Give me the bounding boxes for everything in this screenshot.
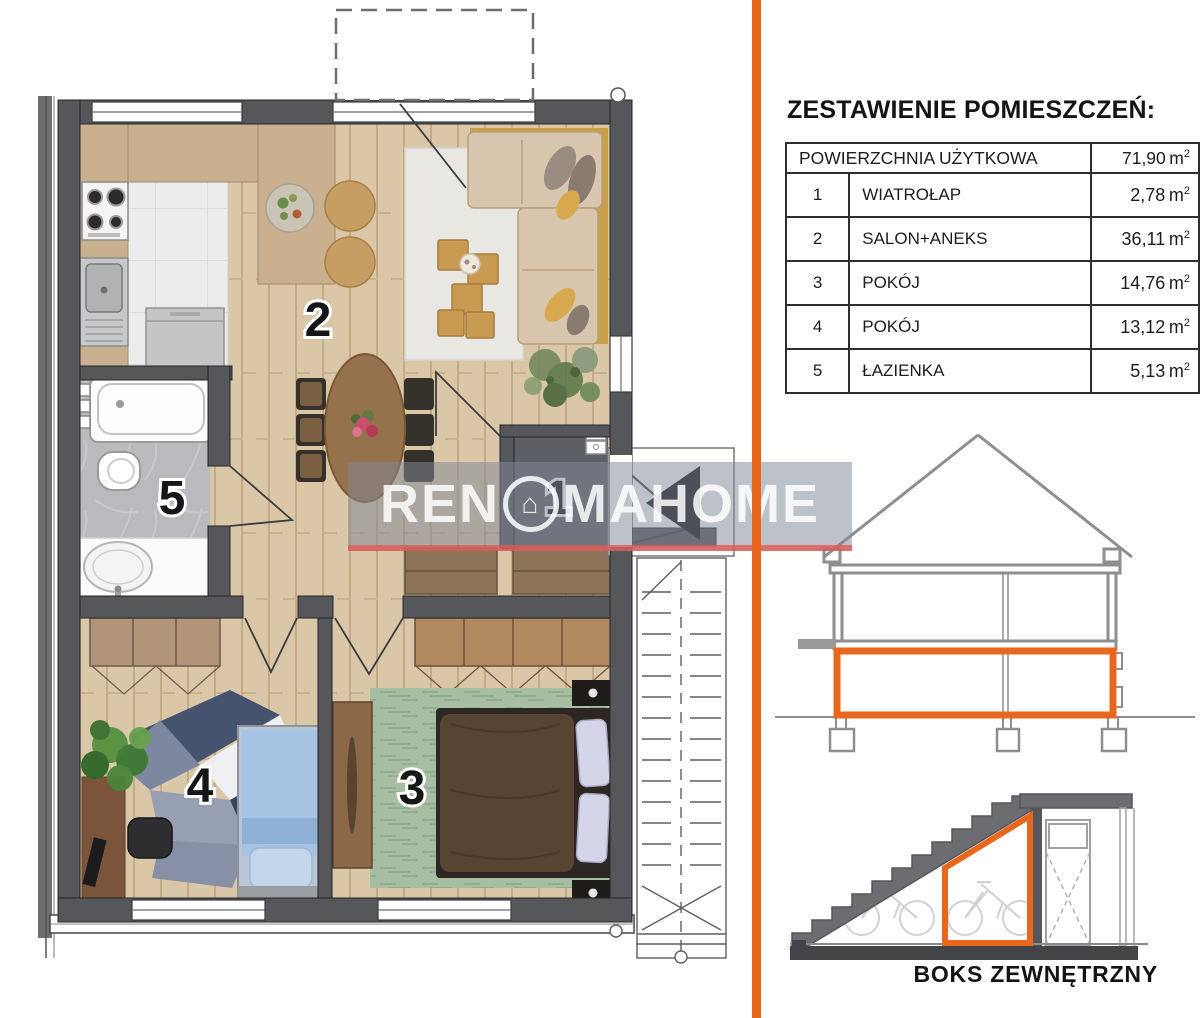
row-no: 1 bbox=[786, 173, 849, 217]
stool bbox=[325, 237, 375, 287]
floor-plan: 2 1 5 4 3 bbox=[0, 0, 755, 1018]
table-row: 1 WIATROŁAP 2,78 m2 bbox=[786, 173, 1199, 217]
room-label-3: 3 bbox=[399, 762, 426, 815]
toilet bbox=[98, 452, 140, 490]
entry-canopy bbox=[628, 528, 716, 546]
desk bbox=[82, 777, 125, 905]
table-row: 2 SALON+ANEKS 36,11 m2 bbox=[786, 217, 1199, 261]
stove bbox=[82, 182, 128, 240]
row-name: WIATROŁAP bbox=[849, 173, 1091, 217]
terrace bbox=[336, 10, 625, 102]
row-area: 36,11 m2 bbox=[1091, 217, 1199, 261]
salad-bowl bbox=[266, 184, 314, 232]
row-no: 2 bbox=[786, 217, 849, 261]
row-area: 5,13 m2 bbox=[1091, 349, 1199, 393]
table-row: 4 POKÓJ 13,12 m2 bbox=[786, 305, 1199, 349]
room-label-2: 2 bbox=[305, 294, 332, 347]
table-row: 3 POKÓJ 14,76 m2 bbox=[786, 261, 1199, 305]
double-bed bbox=[436, 708, 614, 878]
door-with-window bbox=[1046, 808, 1134, 946]
row-no: 4 bbox=[786, 305, 849, 349]
room-label-4: 4 bbox=[187, 760, 214, 813]
house-cross-section bbox=[760, 425, 1200, 755]
row-area: 2,78 m2 bbox=[1091, 173, 1199, 217]
roof-slab bbox=[1020, 794, 1132, 808]
floorplan-page: 2 1 5 4 3 ZESTAWIENIE POMIESZCZEŃ: POWIE… bbox=[0, 0, 1200, 1018]
bathtub bbox=[90, 378, 212, 442]
kitchen-sink bbox=[80, 258, 128, 346]
row-no: 3 bbox=[786, 261, 849, 305]
room-table: POWIERZCHNIA UŻYTKOWA 71,90 m2 1 WIATROŁ… bbox=[785, 142, 1200, 394]
fridge bbox=[146, 308, 224, 368]
highlighted-floor bbox=[837, 651, 1113, 715]
room-label-5: 5 bbox=[159, 472, 186, 525]
row-name: ŁAZIENKA bbox=[849, 349, 1091, 393]
desk-chair bbox=[128, 818, 172, 858]
row-name: POKÓJ bbox=[849, 261, 1091, 305]
table-header-row: POWIERZCHNIA UŻYTKOWA 71,90 m2 bbox=[786, 143, 1199, 173]
vanity-sink bbox=[80, 538, 210, 600]
divider-line bbox=[752, 0, 761, 1018]
ground-band bbox=[790, 946, 1138, 960]
total-label: POWIERZCHNIA UŻYTKOWA bbox=[786, 143, 1091, 173]
room-label-1: 1 bbox=[545, 472, 572, 525]
legend-title: ZESTAWIENIE POMIESZCZEŃ: bbox=[787, 96, 1155, 125]
row-area: 14,76 m2 bbox=[1091, 261, 1199, 305]
staircase-profile bbox=[792, 796, 1032, 946]
dresser bbox=[333, 702, 372, 868]
stool bbox=[325, 181, 375, 231]
row-name: POKÓJ bbox=[849, 305, 1091, 349]
total-value: 71,90 m2 bbox=[1091, 143, 1199, 173]
row-name: SALON+ANEKS bbox=[849, 217, 1091, 261]
row-no: 5 bbox=[786, 349, 849, 393]
single-bed bbox=[238, 726, 324, 900]
table-row: 5 ŁAZIENKA 5,13 m2 bbox=[786, 349, 1199, 393]
section-caption: BOKS ZEWNĘTRZNY bbox=[913, 961, 1158, 988]
row-area: 13,12 m2 bbox=[1091, 305, 1199, 349]
info-panel: ZESTAWIENIE POMIESZCZEŃ: POWIERZCHNIA UŻ… bbox=[755, 0, 1200, 1018]
balcony-ledge bbox=[798, 639, 836, 649]
